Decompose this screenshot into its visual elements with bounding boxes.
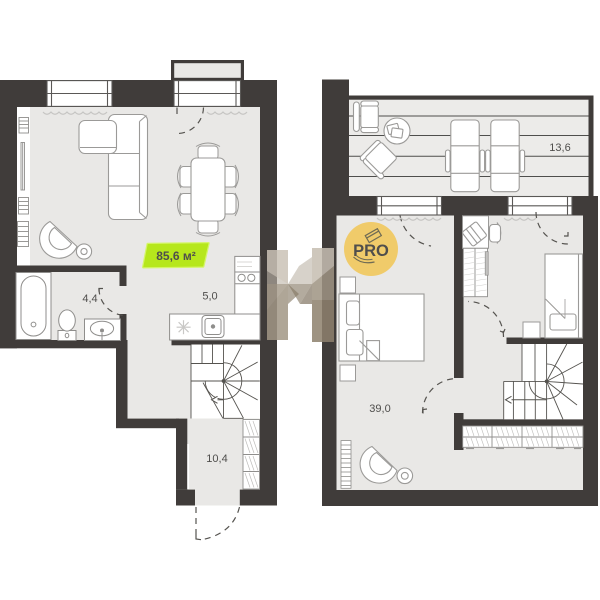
- svg-text:10,4: 10,4: [206, 453, 227, 465]
- svg-text:39,0: 39,0: [369, 403, 390, 415]
- svg-text:5,0: 5,0: [202, 291, 217, 303]
- svg-text:4,4: 4,4: [82, 293, 97, 305]
- svg-text:85,6 м²: 85,6 м²: [156, 249, 196, 263]
- svg-text:13,6: 13,6: [549, 142, 570, 154]
